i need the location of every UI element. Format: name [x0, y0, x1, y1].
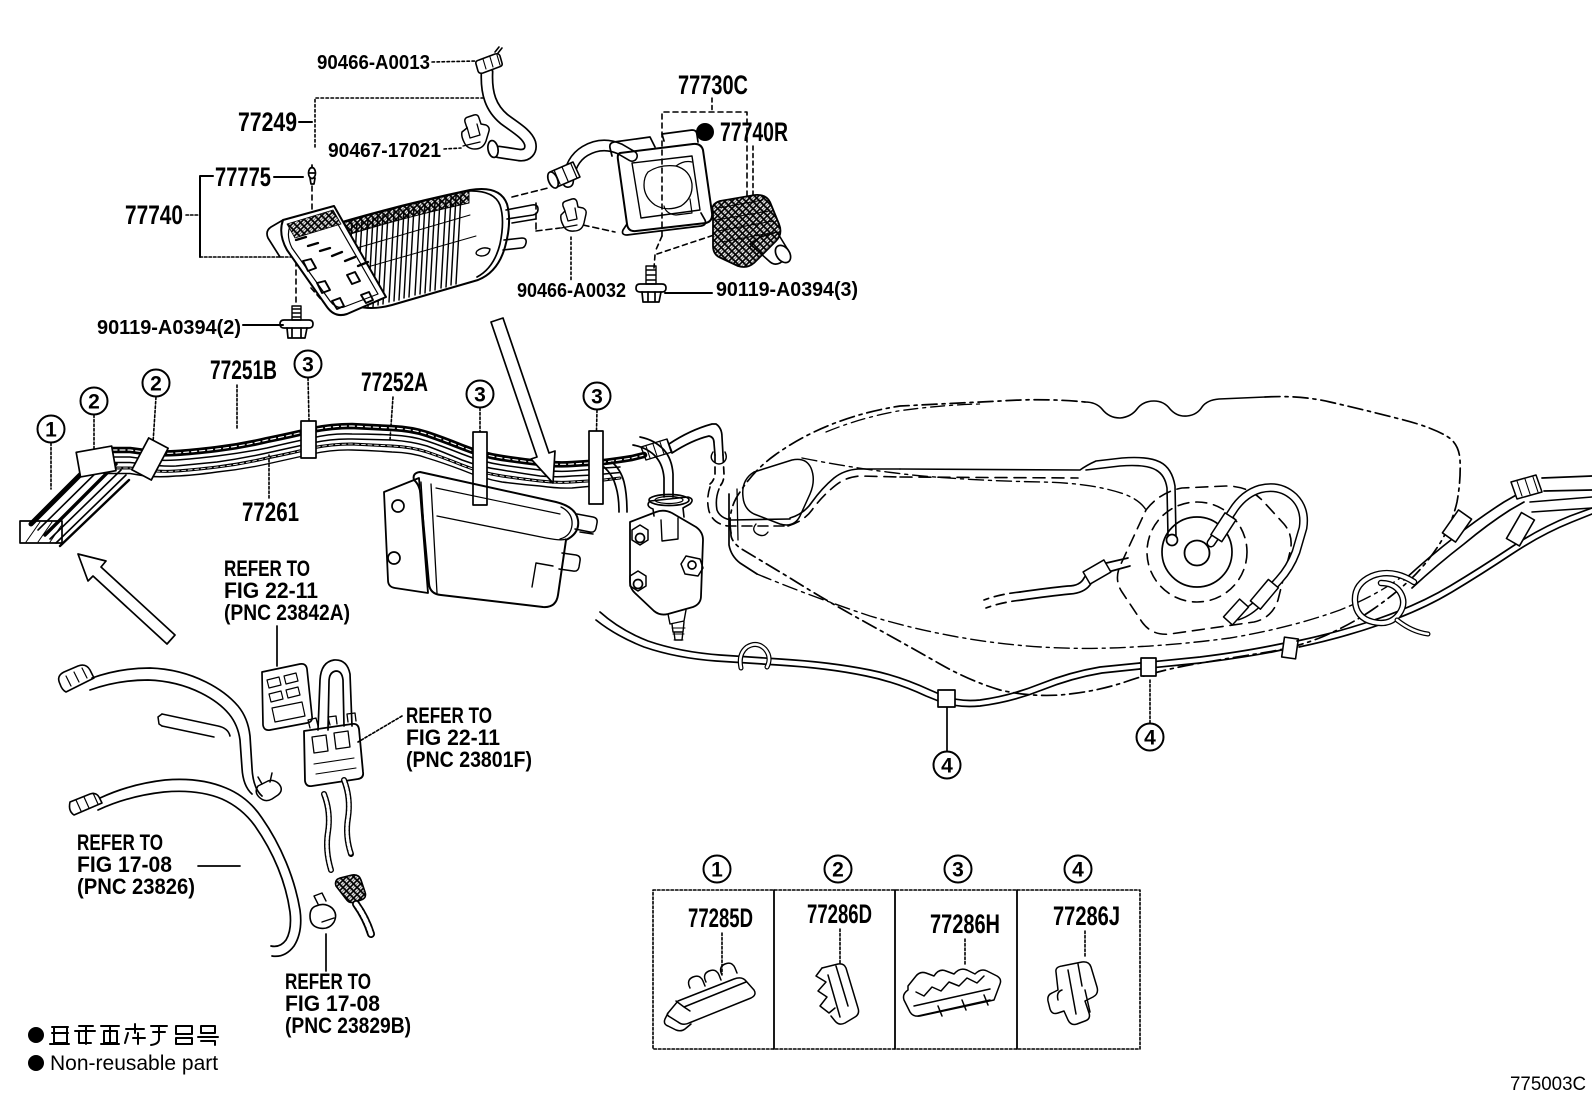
svg-text:77252A: 77252A — [361, 367, 428, 397]
svg-text:77249: 77249 — [238, 107, 297, 137]
svg-text:2: 2 — [832, 859, 844, 882]
svg-text:90119-A0394(3): 90119-A0394(3) — [716, 279, 858, 301]
svg-text:4: 4 — [941, 755, 953, 778]
svg-text:2: 2 — [88, 391, 100, 414]
svg-text:77286J: 77286J — [1053, 901, 1120, 931]
svg-text:77286D: 77286D — [807, 899, 872, 929]
svg-text:77285D: 77285D — [688, 903, 753, 933]
svg-text:77730C: 77730C — [678, 70, 748, 100]
svg-text:(PNC 23842A): (PNC 23842A) — [224, 600, 350, 625]
svg-text:(PNC 23801F): (PNC 23801F) — [406, 747, 532, 772]
svg-text:4: 4 — [1072, 859, 1084, 882]
svg-text:1: 1 — [45, 419, 57, 442]
svg-text:775003C: 775003C — [1510, 1074, 1586, 1095]
svg-text:77775: 77775 — [215, 162, 271, 192]
svg-text:3: 3 — [952, 859, 964, 882]
svg-text:90119-A0394(2): 90119-A0394(2) — [97, 317, 241, 339]
svg-text:77286H: 77286H — [930, 909, 1000, 939]
svg-text:90466-A0032: 90466-A0032 — [517, 280, 626, 302]
svg-text:4: 4 — [1144, 727, 1156, 750]
svg-text:90467-17021: 90467-17021 — [328, 140, 441, 162]
svg-text:77740R: 77740R — [720, 117, 788, 147]
svg-text:77251B: 77251B — [210, 355, 277, 385]
svg-text:(PNC 23826): (PNC 23826) — [77, 874, 195, 899]
svg-text:3: 3 — [302, 354, 314, 377]
svg-text:Non-reusable part: Non-reusable part — [50, 1052, 218, 1075]
svg-text:(PNC 23829B): (PNC 23829B) — [285, 1013, 411, 1038]
svg-text:1: 1 — [711, 859, 723, 882]
svg-text:77740: 77740 — [125, 200, 183, 230]
svg-text:2: 2 — [150, 373, 162, 396]
svg-text:3: 3 — [591, 386, 603, 409]
svg-text:90466-A0013: 90466-A0013 — [317, 52, 430, 74]
svg-text:77261: 77261 — [242, 497, 299, 527]
svg-text:3: 3 — [474, 384, 486, 407]
